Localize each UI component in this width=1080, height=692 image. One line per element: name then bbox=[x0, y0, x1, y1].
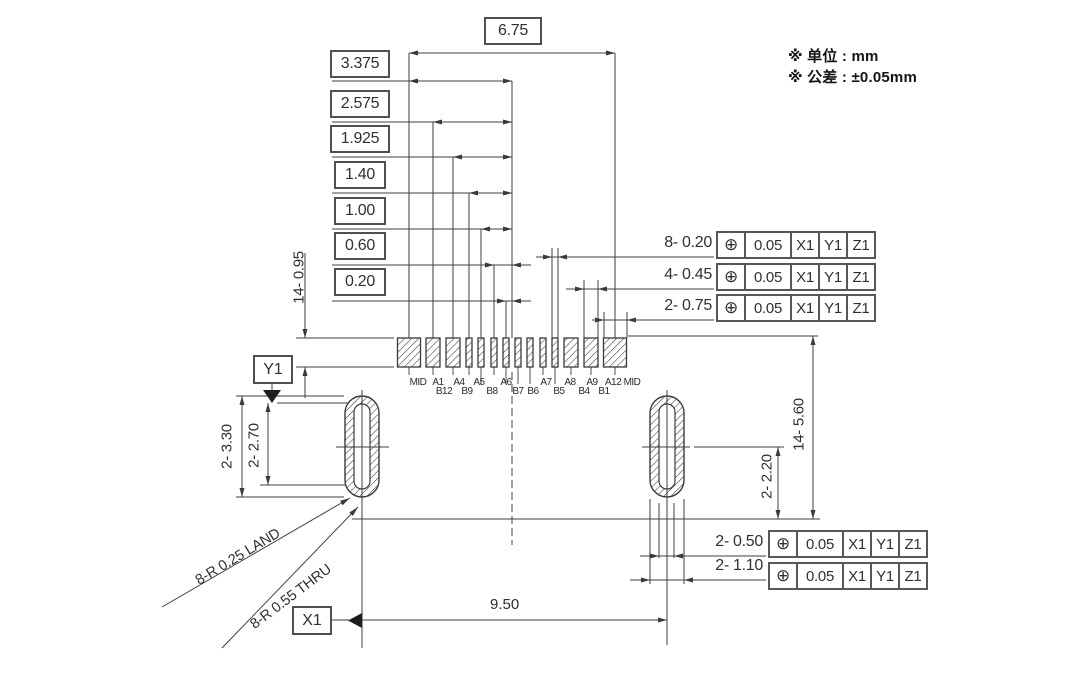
dim-slot-outer-height: 2- 3.30 bbox=[219, 411, 236, 483]
pad-label-b1: B1 bbox=[598, 386, 609, 397]
right-slot bbox=[642, 390, 699, 510]
datum-ref-2: Y1 bbox=[818, 231, 848, 259]
note-unit: ※ 单位 : mm bbox=[788, 45, 879, 66]
fcf-bottom-label-0: 2- 0.50 bbox=[683, 533, 763, 551]
pad-label-a7: A7 bbox=[540, 377, 551, 388]
datum-y1: Y1 bbox=[253, 355, 293, 384]
pad-label-b7: B7 bbox=[512, 386, 523, 397]
dim-020-box: 0.20 bbox=[334, 268, 386, 296]
datum-ref-3: Z1 bbox=[846, 231, 876, 259]
dim-060-box: 0.60 bbox=[334, 232, 386, 260]
datum-ref-2: Y1 bbox=[818, 263, 848, 291]
pad-label-a6: A6 bbox=[500, 377, 511, 388]
fcf-top-label-2: 2- 0.75 bbox=[632, 297, 712, 315]
tolerance-value: 0.05 bbox=[796, 562, 844, 590]
pad-label-b6: B6 bbox=[527, 386, 538, 397]
dim-pad-height: 14- 0.95 bbox=[291, 238, 308, 318]
dim-slot-inner-height: 2- 2.70 bbox=[246, 410, 263, 482]
tolerance-value: 0.05 bbox=[744, 294, 792, 322]
position-symbol: ⊕ bbox=[716, 294, 746, 322]
fcf-top-label-0: 8- 0.20 bbox=[632, 234, 712, 252]
datum-ref-1: X1 bbox=[790, 263, 820, 291]
dim-pad-to-ref: 14- 5.60 bbox=[791, 385, 808, 465]
datum-ref-3: Z1 bbox=[846, 294, 876, 322]
pad-label-b9: B9 bbox=[461, 386, 472, 397]
engineering-drawing: ※ 单位 : mm ※ 公差 : ±0.05mm 6.75 3.375 2.57… bbox=[0, 0, 1080, 692]
pad-label-a8: A8 bbox=[564, 377, 575, 388]
datum-ref-1: X1 bbox=[842, 562, 872, 590]
pad-label-b8: B8 bbox=[486, 386, 497, 397]
tolerance-value: 0.05 bbox=[744, 231, 792, 259]
datum-ref-2: Y1 bbox=[818, 294, 848, 322]
fcf-top-label-1: 4- 0.45 bbox=[632, 266, 712, 284]
datum-x1-triangle bbox=[348, 613, 362, 628]
position-symbol: ⊕ bbox=[716, 263, 746, 291]
note-tolerance: ※ 公差 : ±0.05mm bbox=[788, 66, 917, 87]
datum-x1: X1 bbox=[292, 606, 332, 635]
datum-ref-3: Z1 bbox=[898, 530, 928, 558]
datum-ref-1: X1 bbox=[842, 530, 872, 558]
dim-span-box: 6.75 bbox=[484, 17, 542, 45]
pad-row bbox=[398, 338, 627, 367]
datum-ref-2: Y1 bbox=[870, 530, 900, 558]
tolerance-value: 0.05 bbox=[796, 530, 844, 558]
dim-2575-box: 2.575 bbox=[330, 90, 390, 118]
datum-ref-1: X1 bbox=[790, 231, 820, 259]
dim-slot-pitch: 9.50 bbox=[490, 596, 519, 613]
extension-lines bbox=[409, 53, 627, 338]
dim-1925-box: 1.925 bbox=[330, 125, 390, 153]
left-slot bbox=[336, 390, 389, 497]
fcf-bottom-frame-0: ⊕ 0.05 X1 Y1 Z1 bbox=[770, 530, 928, 558]
pad-label-mid-left: MID bbox=[410, 377, 427, 388]
pad-label-b4: B4 bbox=[578, 386, 589, 397]
dim-3375-box: 3.375 bbox=[330, 50, 390, 78]
dim-100-box: 1.00 bbox=[334, 197, 386, 225]
datum-ref-2: Y1 bbox=[870, 562, 900, 590]
datum-ref-3: Z1 bbox=[898, 562, 928, 590]
position-symbol: ⊕ bbox=[716, 231, 746, 259]
tolerance-value: 0.05 bbox=[744, 263, 792, 291]
pad-label-b12: B12 bbox=[436, 386, 452, 397]
fcf-bottom-label-1: 2- 1.10 bbox=[683, 557, 763, 575]
dim-140-box: 1.40 bbox=[334, 161, 386, 189]
pad-label-mid-right: MID bbox=[624, 377, 641, 388]
fcf-top-frame-1: ⊕ 0.05 X1 Y1 Z1 bbox=[718, 263, 876, 291]
position-symbol: ⊕ bbox=[768, 530, 798, 558]
pad-label-a5: A5 bbox=[473, 377, 484, 388]
dim-slot-to-ref: 2- 2.20 bbox=[759, 441, 776, 513]
datum-ref-1: X1 bbox=[790, 294, 820, 322]
fcf-top-frame-0: ⊕ 0.05 X1 Y1 Z1 bbox=[718, 231, 876, 259]
fcf-top-frame-2: ⊕ 0.05 X1 Y1 Z1 bbox=[718, 294, 876, 322]
pad-label-b5: B5 bbox=[553, 386, 564, 397]
datum-ref-3: Z1 bbox=[846, 263, 876, 291]
position-symbol: ⊕ bbox=[768, 562, 798, 590]
fcf-bottom-frame-1: ⊕ 0.05 X1 Y1 Z1 bbox=[770, 562, 928, 590]
